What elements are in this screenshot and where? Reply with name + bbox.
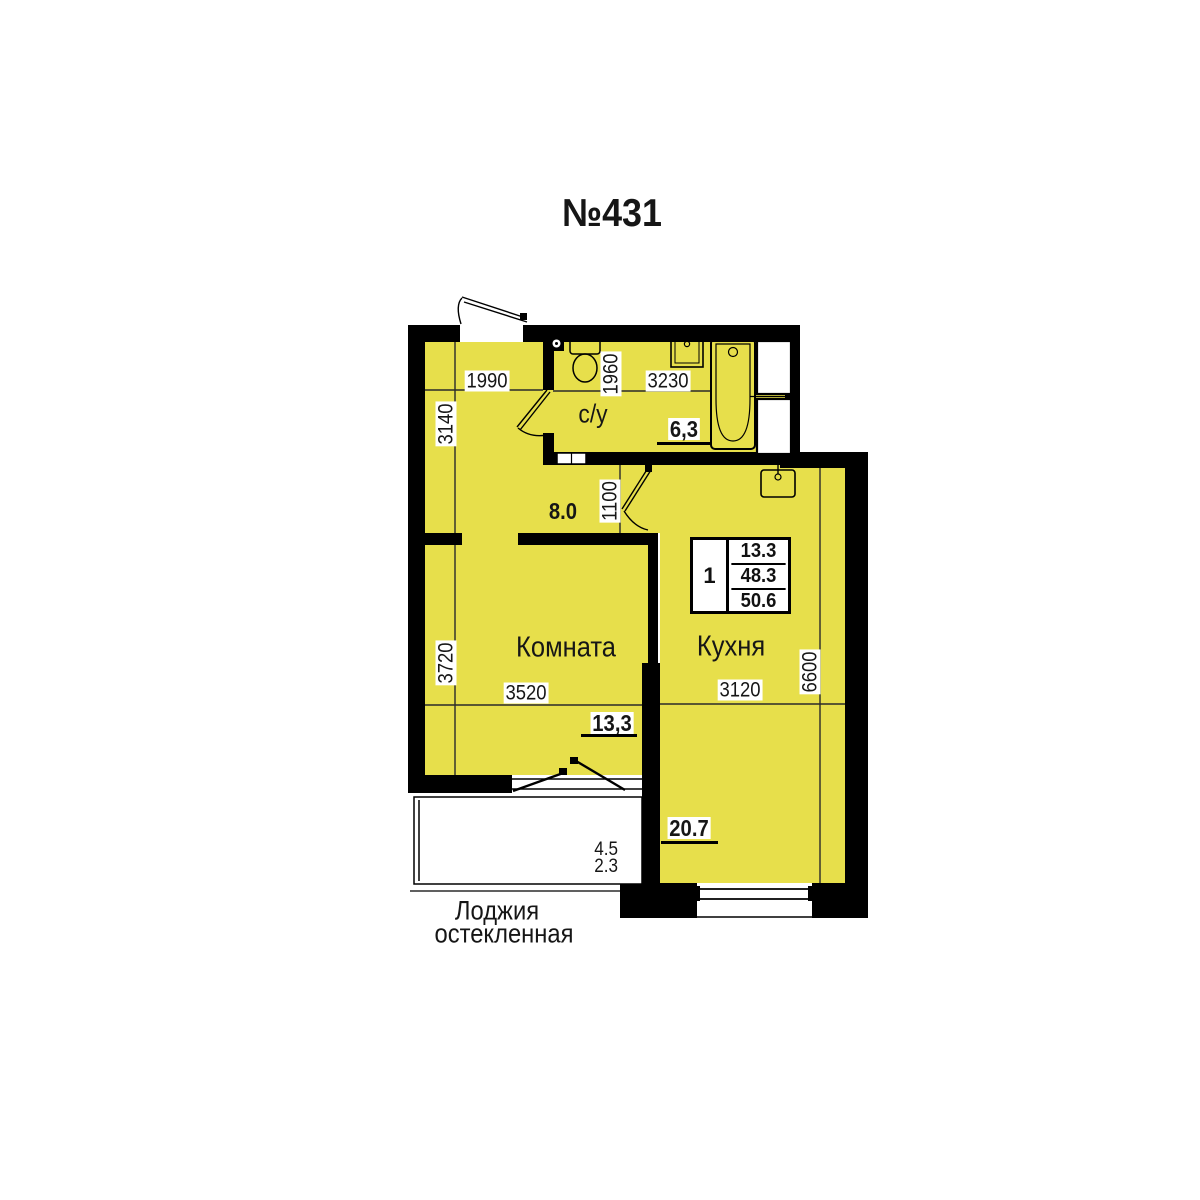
loggia-label-line2: остекленная: [435, 919, 574, 950]
apartment-info-table: 1 13.3 48.3 50.6: [690, 537, 791, 614]
total-area-value: 50.6: [731, 588, 785, 613]
floor-plan-drawing: [0, 0, 1200, 1200]
hatch-icon: [557, 453, 586, 464]
living-room-area: 13,3: [591, 712, 634, 734]
rooms-count: 1: [693, 540, 729, 611]
hall-area: 8.0: [549, 500, 577, 522]
kitchen-window-icon: [695, 886, 813, 917]
bathroom-label: с/у: [578, 399, 607, 430]
entrance-door-icon: [458, 297, 527, 324]
dim-living-depth: 3720: [436, 641, 457, 686]
area-without-loggia-value: 48.3: [731, 563, 785, 588]
dim-bathroom-depth: 1960: [601, 352, 622, 397]
bathroom-area: 6,3: [668, 418, 700, 440]
dim-hall-passage: 1100: [600, 479, 621, 522]
apartment-number: №431: [562, 192, 662, 236]
living-room-area-underline: [581, 734, 637, 737]
dim-bathroom-width: 3230: [646, 371, 691, 392]
dim-hall-depth: 3140: [436, 402, 457, 447]
dim-kitchen-width: 3120: [718, 680, 763, 701]
living-area-value: 13.3: [731, 540, 785, 563]
floor-plan: №431 1990 3140 1960 3230 1100 3720 3520 …: [0, 0, 1200, 1200]
living-room-label: Комната: [516, 632, 616, 665]
kitchen-area-underline: [661, 841, 718, 844]
loggia-area-counted: 2.3: [594, 856, 618, 878]
kitchen-label: Кухня: [697, 631, 765, 664]
dim-living-width: 3520: [504, 683, 549, 704]
drain-icon: [549, 336, 564, 351]
dim-hall-width: 1990: [465, 371, 510, 392]
bathroom-area-underline: [657, 442, 712, 445]
kitchen-area: 20.7: [668, 817, 711, 839]
dim-kitchen-depth: 6600: [800, 650, 821, 695]
